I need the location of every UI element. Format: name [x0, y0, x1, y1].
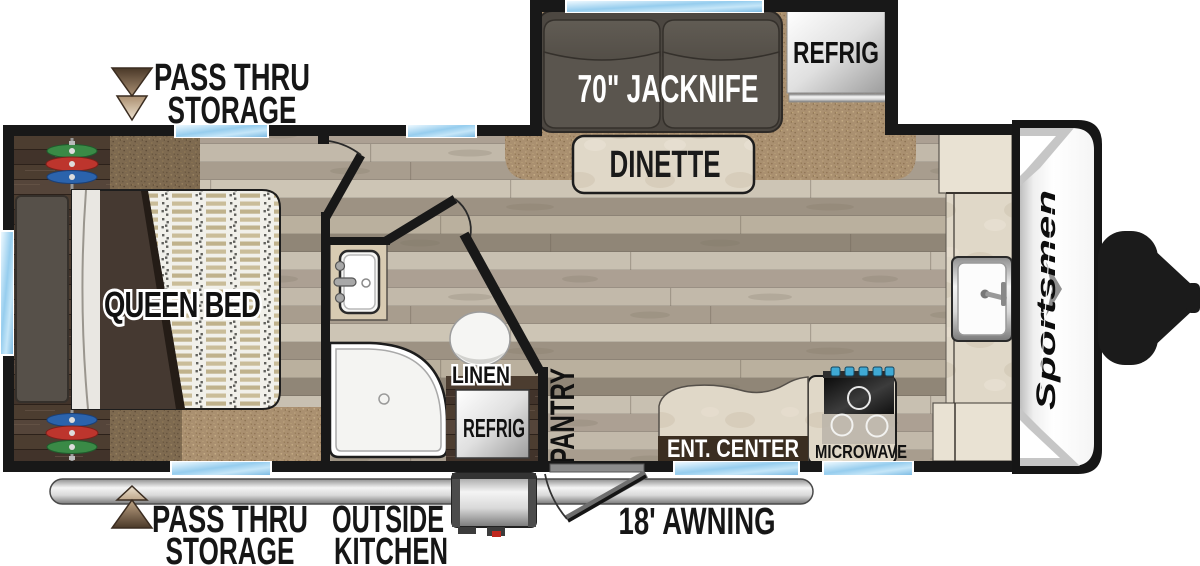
svg-text:70" JACKNIFE: 70" JACKNIFE	[578, 68, 759, 111]
svg-text:QUEEN BED: QUEEN BED	[104, 284, 260, 325]
svg-text:PANTRY: PANTRY	[544, 368, 582, 464]
svg-text:18' AWNING: 18' AWNING	[619, 501, 776, 543]
svg-text:MICROWAVE: MICROWAVE	[815, 442, 907, 462]
svg-text:STORAGE: STORAGE	[166, 531, 295, 566]
svg-text:REFRIG: REFRIG	[463, 413, 525, 443]
svg-text:KITCHEN: KITCHEN	[334, 531, 448, 566]
svg-text:STORAGE: STORAGE	[168, 90, 297, 132]
svg-text:LINEN: LINEN	[452, 362, 510, 389]
svg-text:REFRIG: REFRIG	[793, 35, 879, 70]
svg-text:DINETTE: DINETTE	[610, 144, 721, 186]
svg-text:ENT. CENTER: ENT. CENTER	[667, 435, 799, 463]
